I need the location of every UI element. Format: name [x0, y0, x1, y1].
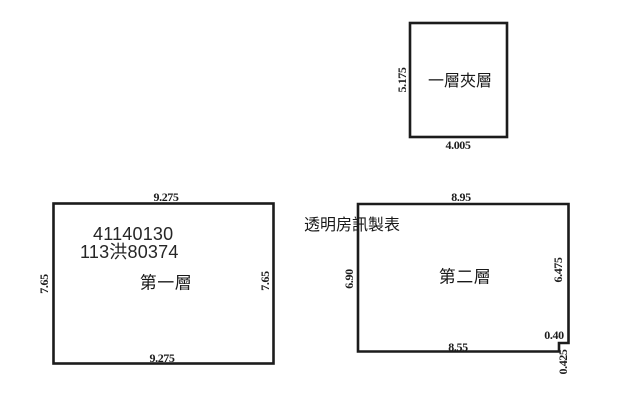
maker-note: 透明房訊製表 [304, 218, 400, 234]
second-floor-label: 第二層 [439, 269, 492, 286]
second-floor-dim-notch-height: 0.425 [557, 349, 569, 374]
second-floor-dim-notch-width: 0.40 [544, 329, 563, 341]
first-floor-id-line2: 113洪80374 [80, 243, 179, 261]
first-floor-label: 第一層 [140, 275, 193, 292]
first-floor-dim-bottom: 9.275 [149, 352, 174, 364]
first-floor-dim-top: 9.275 [153, 191, 178, 203]
first-floor-dim-right: 7.65 [259, 271, 271, 290]
mezzanine-dim-left: 5.175 [396, 67, 408, 92]
first-floor-id-line1: 41140130 [93, 225, 173, 243]
mezzanine-label: 一層夾層 [428, 74, 492, 90]
second-floor-dim-top: 8.95 [451, 191, 470, 203]
second-floor-dim-bottom: 8.55 [448, 341, 467, 353]
floor-plan-canvas: 一層夾層 5.175 4.005 41140130 113洪80374 第一層 … [0, 0, 640, 402]
second-floor-dim-right: 6.475 [552, 257, 564, 282]
second-floor-dim-left: 6.90 [343, 269, 355, 288]
first-floor-dim-left: 7.65 [38, 274, 50, 293]
mezzanine-dim-bottom: 4.005 [445, 139, 470, 151]
